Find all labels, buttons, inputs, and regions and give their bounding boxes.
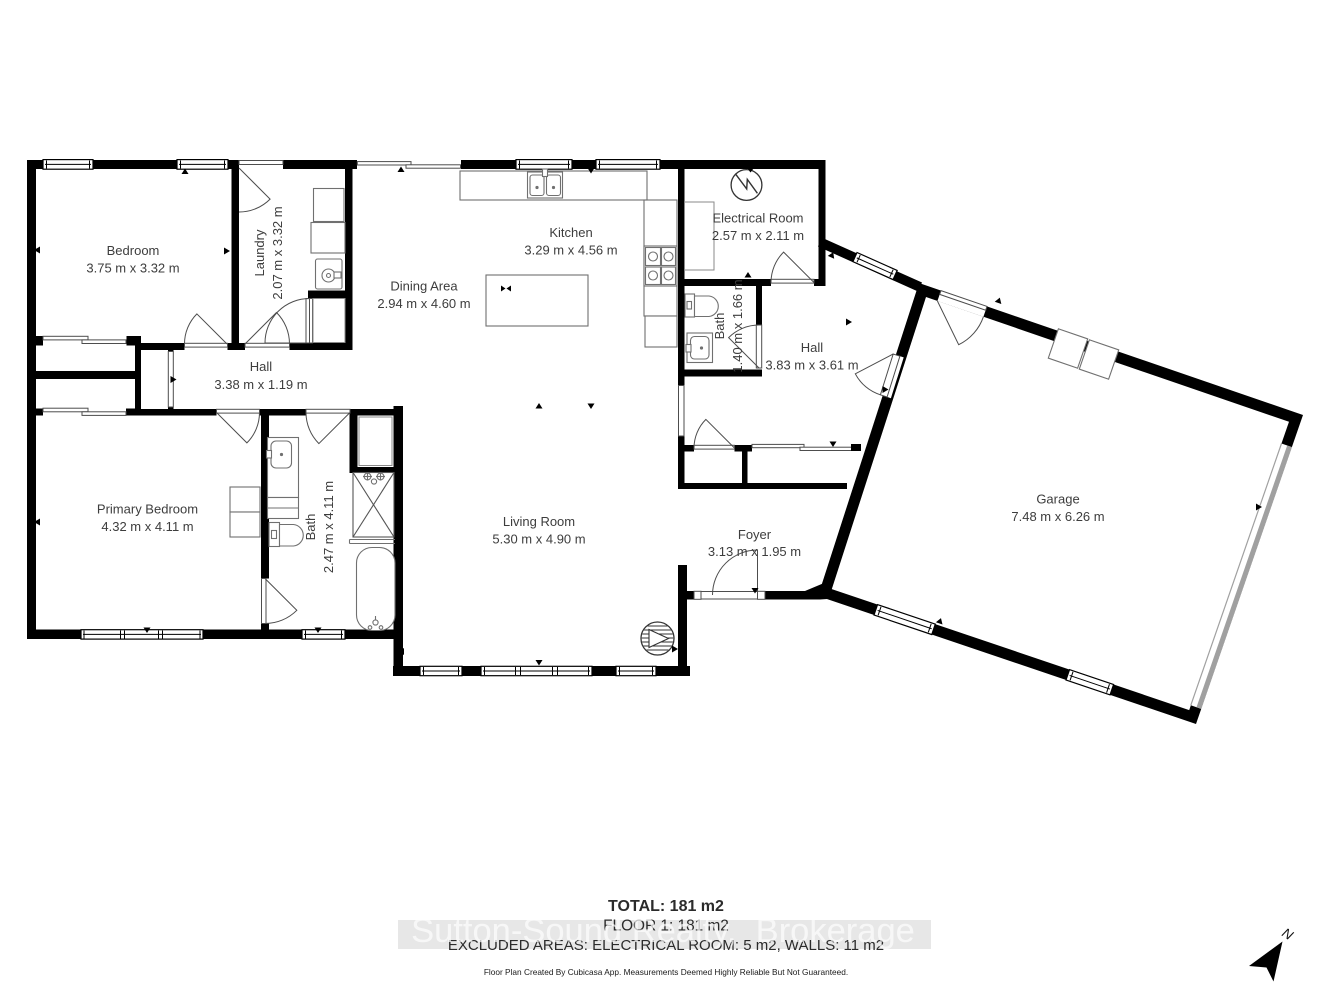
svg-text:Primary Bedroom: Primary Bedroom: [97, 502, 198, 517]
svg-text:2.57 m x 2.11 m: 2.57 m x 2.11 m: [712, 228, 804, 243]
svg-text:5.30 m x 4.90 m: 5.30 m x 4.90 m: [492, 532, 585, 547]
svg-text:2.94 m x 4.60 m: 2.94 m x 4.60 m: [377, 296, 470, 311]
svg-text:Bath: Bath: [712, 313, 727, 340]
svg-text:3.83 m x 3.61 m: 3.83 m x 3.61 m: [765, 358, 858, 373]
svg-text:Kitchen: Kitchen: [549, 225, 592, 240]
svg-text:3.38 m x 1.19 m: 3.38 m x 1.19 m: [214, 377, 307, 392]
svg-text:Foyer: Foyer: [738, 527, 772, 542]
svg-text:Garage: Garage: [1036, 492, 1079, 507]
svg-text:Hall: Hall: [801, 340, 824, 355]
svg-text:4.32 m x 4.11 m: 4.32 m x 4.11 m: [101, 519, 193, 534]
svg-text:Dining Area: Dining Area: [390, 279, 458, 294]
svg-text:7.48 m x 6.26 m: 7.48 m x 6.26 m: [1011, 509, 1104, 524]
svg-text:3.13 m x 1.95 m: 3.13 m x 1.95 m: [708, 544, 801, 559]
svg-text:Floor Plan Created By Cubicasa: Floor Plan Created By Cubicasa App. Meas…: [484, 967, 848, 977]
svg-text:Hall: Hall: [250, 359, 273, 374]
svg-text:2.07 m x 3.32 m: 2.07 m x 3.32 m: [270, 206, 285, 299]
svg-text:3.75 m x 3.32 m: 3.75 m x 3.32 m: [86, 261, 179, 276]
svg-text:Laundry: Laundry: [252, 229, 267, 276]
svg-text:Sutton-Sound Realty, Brokerag: Sutton-Sound Realty, Brokerage: [411, 912, 915, 950]
svg-text:Bath: Bath: [303, 514, 318, 541]
svg-text:1.40 m x 1.66 m: 1.40 m x 1.66 m: [730, 279, 745, 372]
svg-text:Living Room: Living Room: [503, 514, 575, 529]
svg-text:3.29 m x 4.56 m: 3.29 m x 4.56 m: [524, 243, 617, 258]
svg-text:Electrical Room: Electrical Room: [712, 211, 803, 226]
svg-text:Bedroom: Bedroom: [107, 243, 160, 258]
svg-text:2.47 m x 4.11 m: 2.47 m x 4.11 m: [321, 481, 336, 573]
